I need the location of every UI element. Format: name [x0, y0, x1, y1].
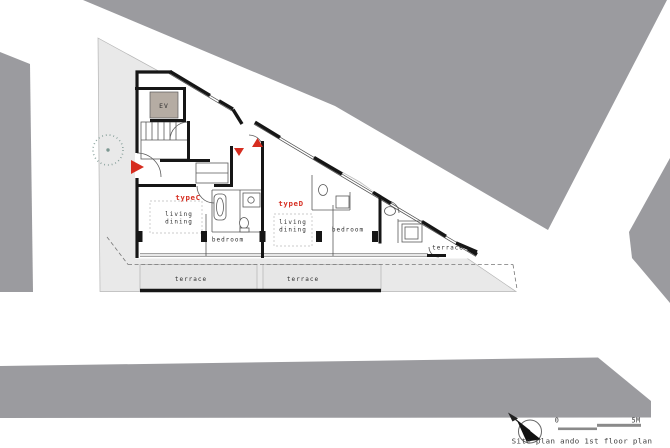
toilet-tank-type-c [240, 228, 249, 232]
tree-trunk-dot [106, 148, 109, 151]
toilet-type-c [240, 218, 249, 229]
shower-tray-east-unit [405, 227, 418, 239]
scale-max-label: 5M [632, 417, 641, 425]
label-type-c-living: living [165, 211, 193, 218]
label-type-c: typeC [175, 193, 200, 202]
toilet-east-unit [385, 207, 396, 216]
label-type-d-bedroom: bedroom [332, 227, 364, 234]
label-type-d-dining: dining [279, 227, 307, 234]
shower-type-d [336, 196, 349, 208]
label-terrace-type-d: terrace [287, 276, 319, 283]
label-type-c-bedroom: bedroom [212, 237, 244, 244]
label-type-d-living: living [279, 219, 307, 226]
site-plan-stage: EV typeC living dining bedroom typeD liv… [0, 0, 670, 448]
context-block-south-road [0, 358, 651, 419]
label-terrace-east: terrace [432, 246, 463, 252]
label-type-c-dining: dining [165, 219, 193, 226]
vanity-sink [248, 197, 254, 203]
toilet-type-d [319, 185, 328, 196]
scale-zero-label: 0 [555, 417, 560, 425]
elevator: EV [150, 92, 178, 118]
drawing-caption: Site plan ando 1st floor plan [512, 437, 653, 446]
scale-bar-segment-right [597, 424, 641, 427]
terrace-type-d [263, 265, 381, 291]
floor-plan-drawing: EV typeC living dining bedroom typeD liv… [0, 0, 670, 448]
bathtub-basin [217, 198, 224, 216]
label-terrace-type-c: terrace [175, 276, 207, 283]
scale-bar-segment-left [558, 428, 597, 431]
elevator-label: EV [159, 102, 169, 110]
label-type-d: typeD [278, 199, 303, 208]
context-block-west [0, 52, 33, 292]
